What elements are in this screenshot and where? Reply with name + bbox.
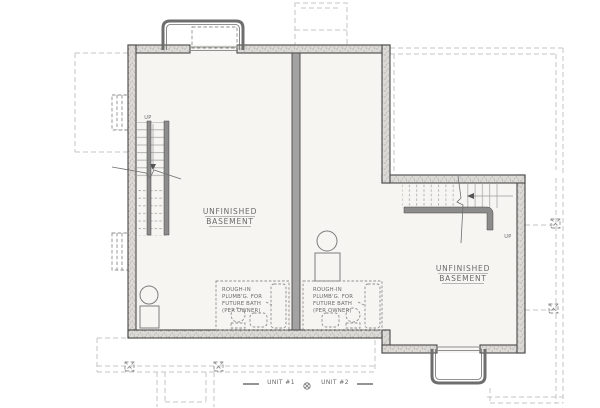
stair-unit1-up-label: UP (144, 115, 151, 121)
wall-bottom-unit2-left (382, 345, 437, 353)
bath-note-unit1-line2: PLUMB'G. FOR (222, 294, 262, 300)
stair-unit1-rail-right (164, 121, 169, 235)
window-well-bottom (432, 349, 485, 383)
deck-outline-bottom-left (97, 338, 375, 407)
room-label-unit1: UNFINISHED BASEMENT (203, 207, 257, 227)
wall-bottom-unit1 (128, 330, 382, 338)
wall-left (128, 45, 136, 338)
room-label-unit1-line1: UNFINISHED (203, 207, 257, 216)
deck-post-right-lower (549, 304, 558, 313)
room-label-unit2-line1: UNFINISHED (436, 264, 490, 273)
window-well-top-window-outline (192, 27, 237, 48)
porch-outline-top-center (295, 3, 347, 45)
ledge-outline-left-upper (112, 95, 128, 130)
bath-note-unit1-line1: ROUGH-IN (222, 287, 251, 293)
wall-upper-right-vertical (382, 45, 390, 183)
room-label-unit2: UNFINISHED BASEMENT (436, 264, 490, 284)
stair-unit2-treads-dashed (402, 184, 458, 208)
ledge-outline-left-lower (112, 233, 128, 270)
wall-top-right-segment (237, 45, 390, 53)
bath-note-unit1-line3: FUTURE BATH (222, 301, 261, 307)
wall-top-left-segment (128, 45, 190, 53)
room-label-unit1-line2: BASEMENT (206, 217, 254, 226)
room-label-unit2-line2: BASEMENT (439, 274, 487, 283)
bath-note-unit2-line4: (PER OWNER) (313, 308, 352, 314)
unit1-label: UNIT #1 (267, 379, 295, 386)
stair-unit2-up-label: UP (504, 234, 511, 240)
floor-plan-drawing: UP UP ROUGH-IN PLUMB'G. FOR FUTURE BATH … (0, 0, 600, 408)
bath-note-unit1-line4: (PER OWNER) (222, 308, 261, 314)
deck-outline-upper-right (390, 48, 563, 175)
bath-note-unit2-line1: ROUGH-IN (313, 287, 342, 293)
party-wall (292, 53, 300, 330)
wall-mid-horizontal (382, 175, 525, 183)
unit2-label: UNIT #2 (321, 379, 349, 386)
bath-note-unit2-line3: FUTURE BATH (313, 301, 352, 307)
stair-unit1-treads-solid (137, 122, 166, 182)
unit-designation: UNIT #1 UNIT #2 (243, 379, 373, 389)
floor-plan-sheet: UP UP ROUGH-IN PLUMB'G. FOR FUTURE BATH … (0, 0, 600, 408)
wall-right (517, 175, 525, 353)
stair-unit1-treads-dashed (137, 186, 166, 236)
unit-divider-symbol (304, 383, 310, 389)
bath-note-unit2-line2: PLUMB'G. FOR (313, 294, 353, 300)
deck-stair-outline (157, 372, 214, 407)
